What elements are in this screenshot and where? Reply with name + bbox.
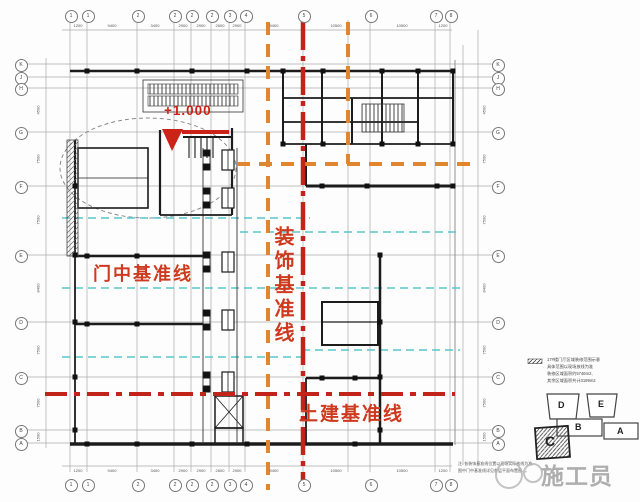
dimension-label: 9400 (108, 468, 117, 473)
dimension-label: 7500 (482, 346, 487, 355)
dimension-label: 2900 (197, 23, 206, 28)
grid-bubble: K (492, 59, 505, 72)
dimension-label: 3400 (151, 23, 160, 28)
dimension-label: 1500 (36, 433, 41, 442)
dimension-label: 4500 (482, 106, 487, 115)
dimension-label: 2900 (179, 23, 188, 28)
dimension-label: 9400 (270, 23, 279, 28)
dimension-label: 2900 (197, 468, 206, 473)
dimension-label: 7500 (36, 216, 41, 225)
watermark-swash: ~ (519, 463, 527, 479)
watermark: ~ 施工员 (493, 455, 640, 497)
grid-bubble: B (492, 425, 505, 438)
grid-bubble: 4 (240, 10, 253, 23)
dimension-label: 9400 (270, 468, 279, 473)
grid-bubble: H (492, 83, 505, 96)
key-plan-label-c: C (545, 433, 555, 449)
grid-bubble: 6 (365, 479, 378, 492)
dimension-label: 1200 (439, 468, 448, 473)
grid-bubble: D (15, 317, 28, 330)
floor-plan-drawing (0, 0, 640, 502)
dimension-label: 7500 (36, 155, 41, 164)
dimension-label: 7500 (36, 346, 41, 355)
dimension-label: 2600 (216, 468, 225, 473)
dimension-label: 10500 (396, 23, 407, 28)
dimension-label: 8400 (482, 284, 487, 293)
grid-bubble: 3 (224, 10, 237, 23)
grid-bubble: 1 (82, 10, 95, 23)
key-plan-label-a: A (617, 426, 624, 436)
grid-bubble: 2 (132, 479, 145, 492)
grid-bubble: 2 (206, 10, 219, 23)
grid-bubble: 2 (169, 10, 182, 23)
grid-bubble: 2 (132, 10, 145, 23)
grid-bubble: 2 (186, 479, 199, 492)
legend-line: 装修区域面积约5746m2, (547, 371, 593, 377)
architectural-floor-plan: +1.000 门中基准线 装饰基准线 土建基准线 17#楼门厅区域装修范围示意 … (0, 0, 640, 502)
wall-section-hatch (67, 140, 78, 256)
grid-bubble: 1 (82, 479, 95, 492)
dimension-label: 8400 (36, 284, 41, 293)
structural-grid-lines (26, 20, 492, 472)
dimension-label: 2600 (216, 23, 225, 28)
grid-bubble: 5 (298, 10, 311, 23)
elevation-label: +1.000 (164, 103, 212, 118)
dimension-label: 2900 (233, 23, 242, 28)
grid-bubble: G (15, 127, 28, 140)
grid-bubble: D (492, 317, 505, 330)
key-plan-label-b: B (575, 422, 582, 432)
legend-swatch (528, 359, 542, 364)
grid-bubble: H (15, 83, 28, 96)
dimension-label: 7500 (482, 155, 487, 164)
dimension-label: 2900 (179, 468, 188, 473)
grid-bubble: 2 (169, 479, 182, 492)
dimension-label: 9400 (108, 23, 117, 28)
dimension-label: 7500 (36, 399, 41, 408)
legend-line: 具体范围以现场放线为准 (547, 364, 593, 370)
stair-hatch (362, 104, 404, 132)
grid-bubble: 7 (430, 479, 443, 492)
watermark-text: 施工员 (541, 457, 613, 491)
dimension-label: 1200 (74, 468, 83, 473)
decoration-datum-label: 装饰基准线 (268, 226, 297, 358)
dimension-label: 1500 (482, 433, 487, 442)
dimension-label: 10500 (396, 468, 407, 473)
key-plan-label-e: E (598, 399, 604, 409)
dimension-label: 3400 (151, 468, 160, 473)
grid-bubble: K (15, 59, 28, 72)
grid-bubble: 6 (365, 10, 378, 23)
grid-bubble: F (492, 181, 505, 194)
grid-bubble: A (492, 438, 505, 451)
grid-bubble: 2 (186, 10, 199, 23)
dimension-label: 7500 (482, 399, 487, 408)
grid-bubble: 3 (224, 479, 237, 492)
grid-bubble: 1 (65, 479, 78, 492)
dimension-label: 10500 (330, 23, 341, 28)
grid-bubble: G (492, 127, 505, 140)
legend-line: 其余区域面积共计3199m2 (547, 378, 596, 384)
grid-bubble: E (15, 250, 28, 263)
dimension-label: 1200 (439, 23, 448, 28)
grid-bubble: 5 (298, 479, 311, 492)
dimension-label: 4500 (36, 106, 41, 115)
legend-line: 17#楼门厅区域装修范围示意 (547, 357, 600, 363)
grid-bubble: B (15, 425, 28, 438)
dimension-label: 2900 (233, 468, 242, 473)
door-datum-label: 门中基准线 (93, 260, 193, 286)
dimension-label: 10500 (330, 468, 341, 473)
civil-datum-label: 土建基准线 (299, 399, 404, 426)
grid-bubble: 8 (445, 479, 458, 492)
grid-bubble: 7 (430, 10, 443, 23)
grid-bubble: A (15, 438, 28, 451)
grid-bubble: 8 (445, 10, 458, 23)
grid-bubble: C (15, 372, 28, 385)
grid-bubble: 4 (240, 479, 253, 492)
cyan-datum-lines (62, 218, 460, 357)
grid-bubble: F (15, 181, 28, 194)
grid-bubble: 1 (65, 10, 78, 23)
grid-bubble: E (492, 250, 505, 263)
grid-bubble: 2 (206, 479, 219, 492)
key-plan-label-d: D (558, 400, 565, 410)
dimension-label: 7500 (482, 216, 487, 225)
grid-bubble: C (492, 372, 505, 385)
dimension-label: 1200 (74, 23, 83, 28)
